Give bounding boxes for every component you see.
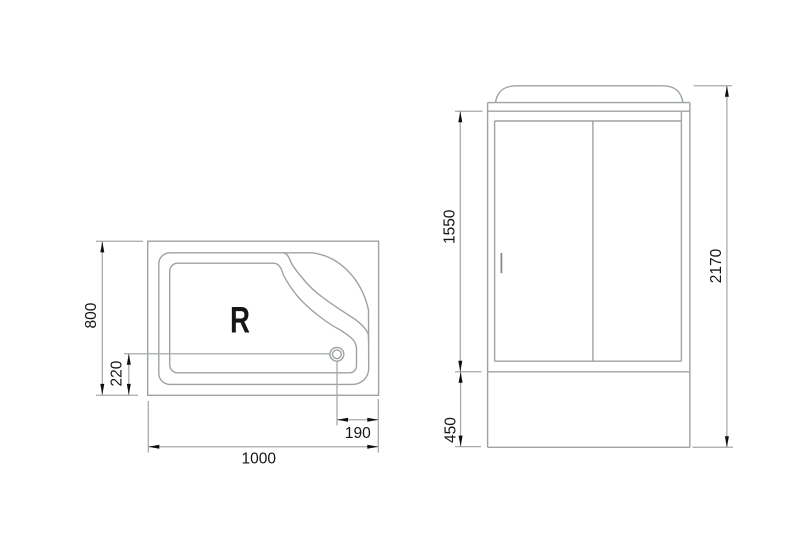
svg-text:1550: 1550: [442, 209, 459, 244]
svg-text:190: 190: [345, 425, 371, 442]
svg-text:220: 220: [109, 360, 126, 386]
svg-text:800: 800: [83, 302, 100, 328]
svg-text:450: 450: [442, 417, 459, 443]
svg-text:1000: 1000: [241, 451, 276, 468]
svg-text:R: R: [230, 300, 250, 341]
svg-text:2170: 2170: [708, 248, 725, 283]
